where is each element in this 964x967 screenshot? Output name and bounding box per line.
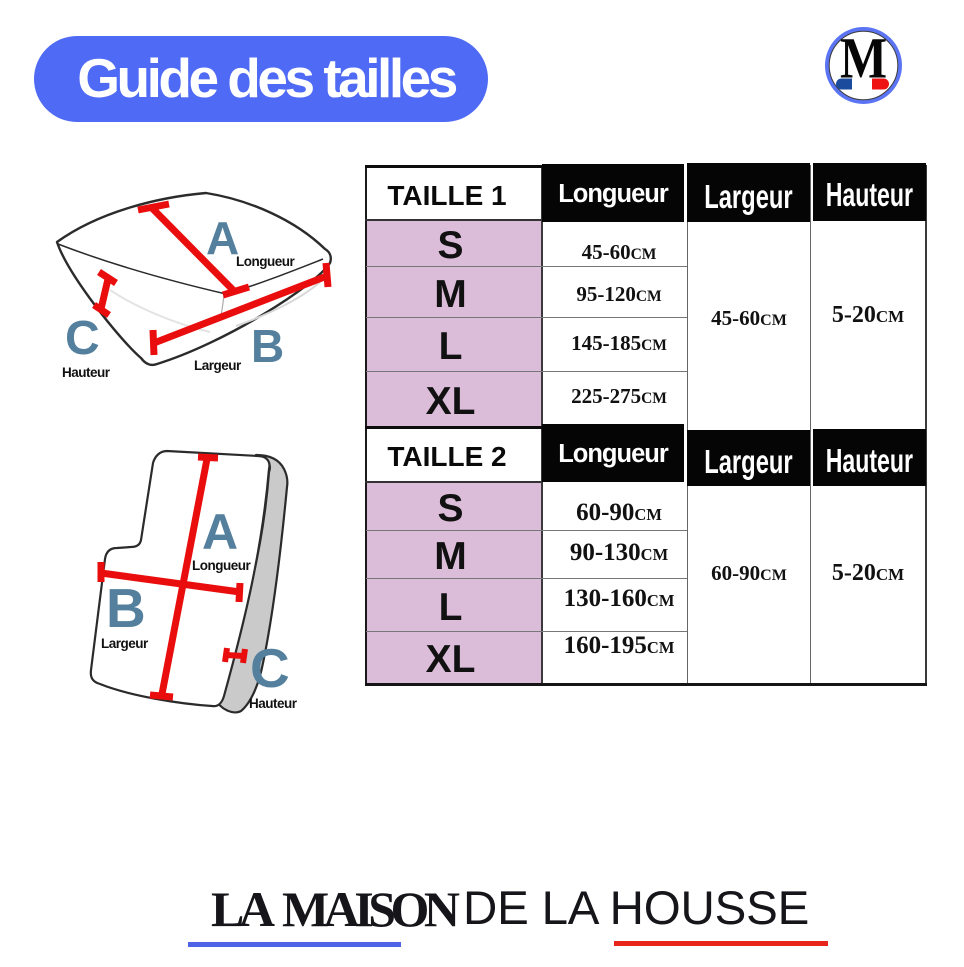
svg-text:Hauteur: Hauteur xyxy=(62,365,111,380)
svg-text:A: A xyxy=(206,212,239,264)
svg-text:Largeur: Largeur xyxy=(194,358,242,373)
svg-text:Hauteur: Hauteur xyxy=(249,696,298,711)
svg-text:B: B xyxy=(251,320,284,372)
svg-text:C: C xyxy=(65,312,100,365)
svg-text:Longueur: Longueur xyxy=(236,254,295,269)
svg-text:Largeur: Largeur xyxy=(101,636,149,651)
svg-text:C: C xyxy=(250,637,290,699)
svg-text:A: A xyxy=(202,504,238,560)
svg-text:B: B xyxy=(106,577,146,639)
svg-text:Longueur: Longueur xyxy=(192,558,251,573)
